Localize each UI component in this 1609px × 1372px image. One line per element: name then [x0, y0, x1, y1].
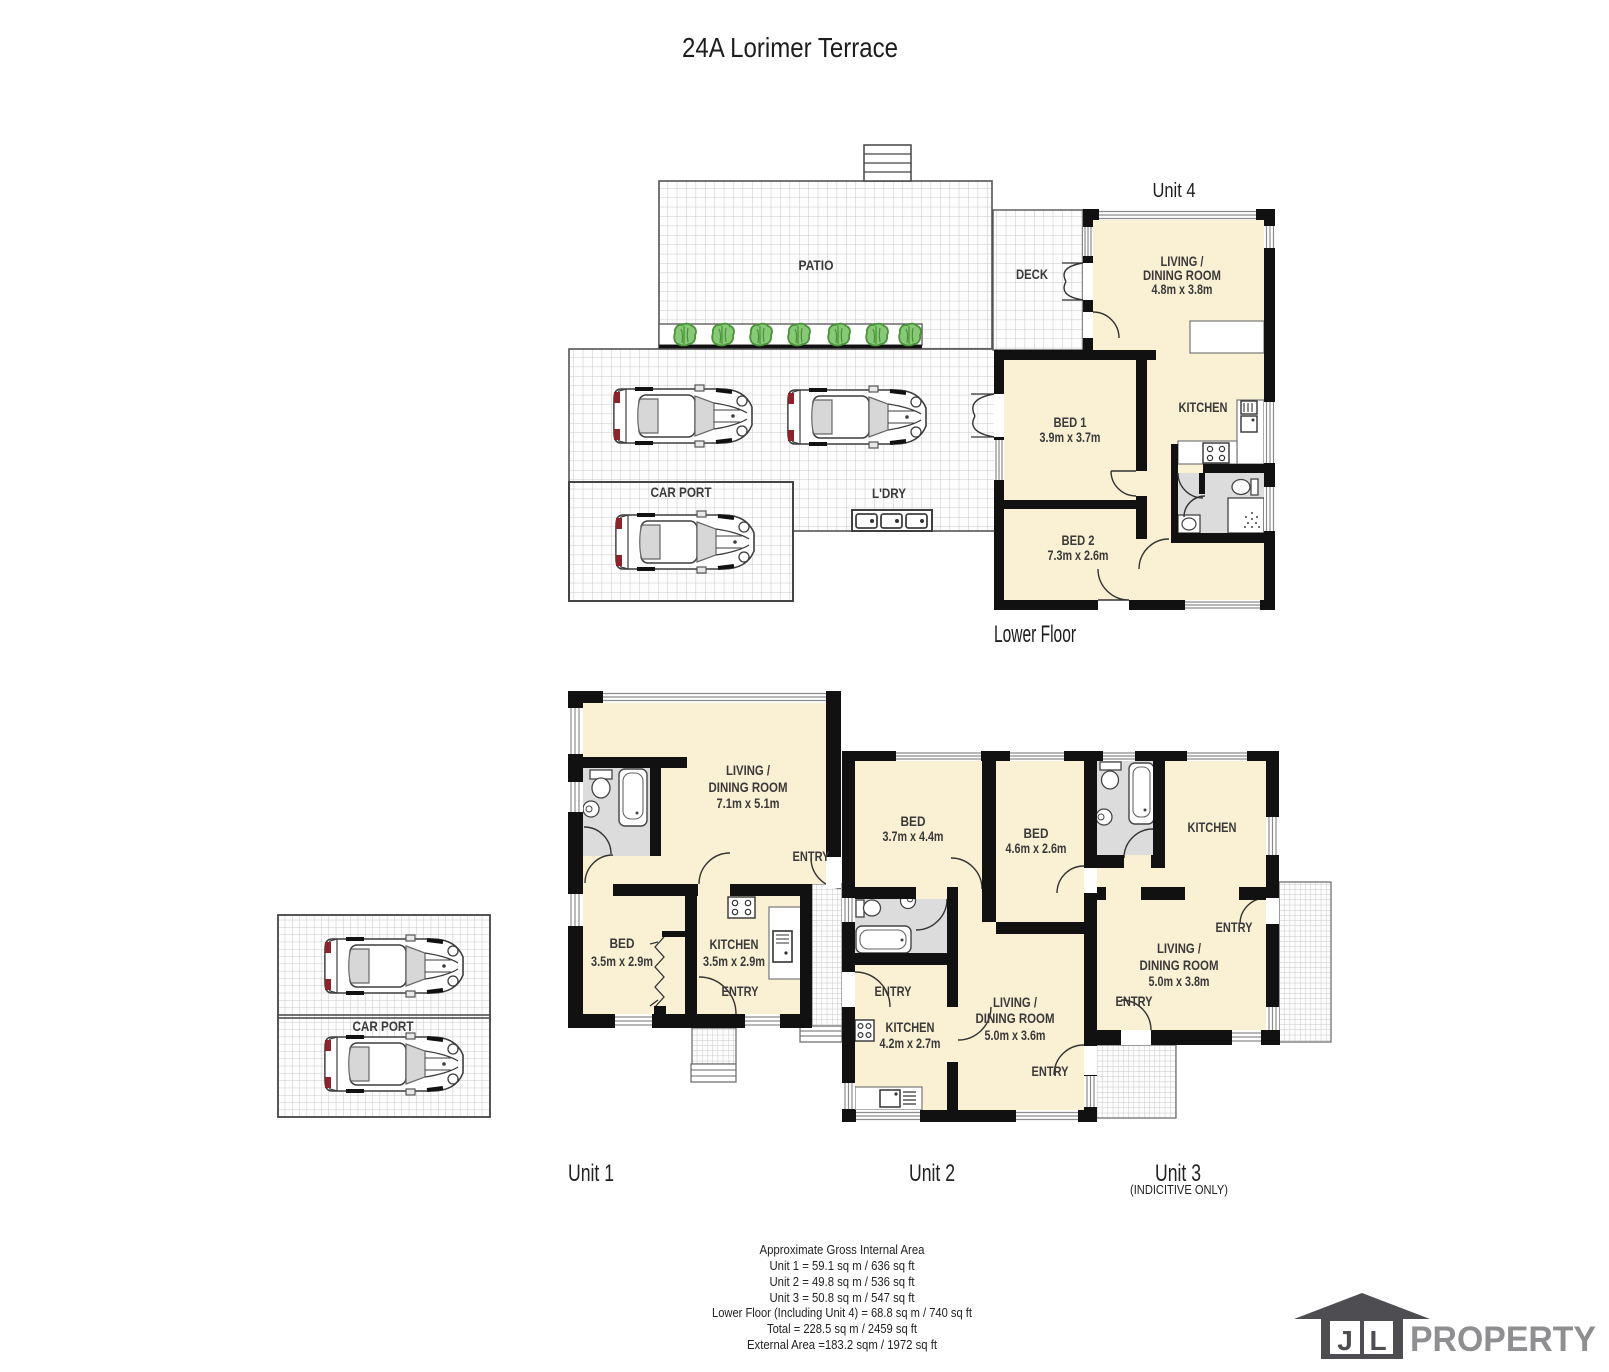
svg-text:7.1m x 5.1m: 7.1m x 5.1m	[717, 795, 780, 811]
svg-text:(INDICITIVE ONLY): (INDICITIVE ONLY)	[1130, 1183, 1228, 1197]
svg-text:Approximate Gross Internal Are: Approximate Gross Internal Area	[760, 1242, 926, 1257]
svg-text:KITCHEN: KITCHEN	[1188, 819, 1237, 835]
svg-text:DINING ROOM: DINING ROOM	[709, 779, 788, 795]
svg-text:PROPERTY: PROPERTY	[1410, 1320, 1596, 1359]
svg-text:BED: BED	[610, 935, 635, 951]
svg-text:L: L	[1369, 1325, 1386, 1356]
svg-text:ENTRY: ENTRY	[793, 848, 831, 864]
svg-text:KITCHEN: KITCHEN	[1179, 399, 1228, 415]
svg-text:Unit 1: Unit 1	[568, 1160, 614, 1187]
svg-text:Lower Floor (Including Unit 4): Lower Floor (Including Unit 4) = 68.8 sq…	[712, 1305, 972, 1320]
svg-text:DINING ROOM: DINING ROOM	[976, 1010, 1055, 1026]
svg-text:External Area =183.2 sqm / 197: External Area =183.2 sqm / 1972 sq ft	[747, 1337, 937, 1352]
svg-text:KITCHEN: KITCHEN	[710, 936, 759, 952]
svg-text:24A Lorimer Terrace: 24A Lorimer Terrace	[682, 32, 898, 63]
svg-text:4.6m x 2.6m: 4.6m x 2.6m	[1006, 840, 1067, 856]
svg-text:4.2m x 2.7m: 4.2m x 2.7m	[880, 1035, 941, 1051]
svg-text:ENTRY: ENTRY	[1116, 993, 1154, 1009]
svg-text:ENTRY: ENTRY	[1032, 1063, 1070, 1079]
svg-text:ENTRY: ENTRY	[722, 983, 760, 999]
svg-text:CAR PORT: CAR PORT	[651, 484, 712, 500]
svg-text:ENTRY: ENTRY	[875, 983, 913, 999]
svg-text:5.0m x 3.8m: 5.0m x 3.8m	[1149, 973, 1210, 989]
svg-text:CAR PORT: CAR PORT	[353, 1018, 414, 1034]
svg-text:LIVING /: LIVING /	[993, 994, 1037, 1010]
svg-text:LIVING /: LIVING /	[1157, 940, 1201, 956]
svg-text:Unit 3 = 50.8 sq m / 547 sq ft: Unit 3 = 50.8 sq m / 547 sq ft	[770, 1290, 915, 1305]
svg-text:Total = 228.5 sq m / 2459 sq f: Total = 228.5 sq m / 2459 sq ft	[767, 1321, 917, 1336]
svg-text:PATIO: PATIO	[799, 257, 834, 273]
svg-text:DINING ROOM: DINING ROOM	[1140, 957, 1219, 973]
svg-text:Unit 2 = 49.8 sq m / 536 sq ft: Unit 2 = 49.8 sq m / 536 sq ft	[770, 1274, 915, 1289]
svg-text:3.5m x 2.9m: 3.5m x 2.9m	[703, 953, 765, 969]
svg-text:Unit 2: Unit 2	[909, 1160, 955, 1187]
svg-text:KITCHEN: KITCHEN	[886, 1019, 935, 1035]
svg-text:5.0m x 3.6m: 5.0m x 3.6m	[985, 1027, 1046, 1043]
svg-text:L'DRY: L'DRY	[872, 485, 907, 501]
svg-text:Unit 4: Unit 4	[1153, 180, 1196, 202]
svg-text:J: J	[1337, 1325, 1353, 1356]
svg-text:BED 2: BED 2	[1062, 532, 1095, 548]
svg-text:Lower Floor: Lower Floor	[994, 621, 1076, 648]
svg-text:BED: BED	[901, 813, 926, 829]
svg-text:LIVING /: LIVING /	[726, 762, 770, 778]
svg-text:BED: BED	[1024, 825, 1049, 841]
svg-text:7.3m x 2.6m: 7.3m x 2.6m	[1048, 547, 1109, 563]
svg-text:3.9m x 3.7m: 3.9m x 3.7m	[1040, 429, 1101, 445]
svg-text:4.8m x 3.8m: 4.8m x 3.8m	[1152, 281, 1213, 297]
svg-text:ENTRY: ENTRY	[1216, 919, 1254, 935]
svg-text:3.7m x 4.4m: 3.7m x 4.4m	[883, 828, 944, 844]
svg-text:DECK: DECK	[1016, 266, 1048, 282]
svg-text:3.5m x 2.9m: 3.5m x 2.9m	[591, 953, 653, 969]
svg-text:BED 1: BED 1	[1054, 414, 1087, 430]
svg-text:Unit 1 = 59.1 sq m / 636 sq ft: Unit 1 = 59.1 sq m / 636 sq ft	[770, 1258, 915, 1273]
